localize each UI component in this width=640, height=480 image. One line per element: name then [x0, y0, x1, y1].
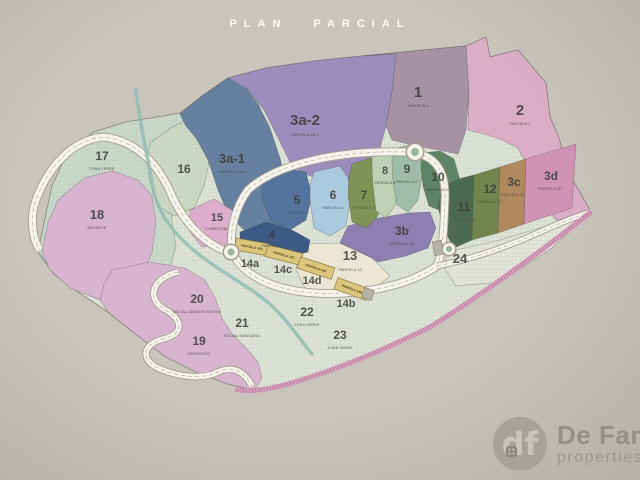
roundabout-island — [228, 249, 234, 255]
parcel-caption-2: PARCELA 2 — [509, 122, 530, 126]
parcel-caption-5: PARCELA 5 — [286, 211, 307, 215]
logo-tagline: properties — [557, 450, 640, 466]
parcel-label-10: 10 — [431, 170, 445, 184]
parcel-caption-3d: PARCELA 3D — [538, 187, 562, 191]
parcel-label-4: 4 — [269, 229, 276, 241]
parcel-label-3a-2: 3a-2 — [290, 112, 320, 129]
parcel-label-19: 19 — [192, 334, 206, 348]
parcel-label-14a: 14a — [241, 258, 260, 270]
parcel-caption-12: PARCELA 12 — [478, 200, 501, 204]
parcel-caption-8: PARCELA 8 — [374, 181, 395, 185]
plan-map-svg: PARCELA 14APARCELA 14CPARCELA 14DPARCELA… — [0, 0, 640, 480]
parcel-caption-3b: PARCELA 3B — [390, 242, 414, 246]
parcel-label-13: 13 — [343, 248, 357, 263]
parcel-label-17: 17 — [95, 149, 109, 163]
parcel-label-3a-1: 3a-1 — [219, 151, 245, 166]
roundabout-island — [411, 148, 418, 155]
logo-monogram-text: df — [502, 425, 540, 463]
parcel-caption-6: PARCELA 6 — [322, 206, 343, 210]
parcel-caption-22: ZONA VERDE — [294, 323, 320, 327]
parcel-label-11: 11 — [458, 200, 471, 214]
parcel-caption-10: PARCELA 10 — [426, 188, 449, 192]
parcel-label-20: 20 — [190, 292, 204, 306]
parcel-caption-18: DOCENTE — [88, 226, 107, 230]
parcel-label-21: 21 — [235, 316, 249, 330]
parcel-label-15: 15 — [211, 212, 223, 224]
parcel-caption-3a-1: PARCELA 3A-1 — [218, 170, 245, 174]
parcel-caption-7: PARCELA 7 — [353, 206, 374, 210]
parcel-label-14c: 14c — [274, 264, 292, 276]
parcel-caption-19: DEPORTIVO — [188, 352, 211, 356]
parcel-label-3d: 3d — [544, 169, 558, 183]
parcel-label-14b: 14b — [337, 298, 356, 310]
parcel-label-16: 16 — [177, 162, 191, 176]
parcel-caption-4: PARCELA 4 — [261, 244, 282, 248]
parcel-label-6: 6 — [330, 188, 337, 202]
parcel-label-24: 24 — [453, 251, 468, 266]
parcel-label-22: 22 — [300, 305, 314, 319]
parcel-label-14d: 14d — [303, 275, 322, 287]
parcel-label-12: 12 — [483, 182, 497, 196]
parcel-caption-20: SOCIAL ADMINISTRATIVO — [173, 310, 221, 314]
parcel-label-9: 9 — [404, 162, 411, 176]
parcel-caption-3a-2: PARCELA 3A-2 — [291, 133, 318, 137]
logo-name: De Fari — [557, 422, 640, 448]
parcel-caption-1: PARCELA 1 — [407, 104, 428, 108]
parcel-caption-17: ZONA VERDE — [89, 167, 115, 171]
parcel-label-3c: 3c — [507, 175, 521, 189]
parcel-label-7: 7 — [361, 188, 368, 202]
parcel-label-8: 8 — [382, 165, 388, 177]
parcel-label-23: 23 — [333, 328, 347, 342]
parcel-caption-11: PARCELA 11 — [452, 218, 475, 222]
parcel-caption-21: SOCIAL SANITARIO — [224, 334, 260, 338]
parcel-label-3b: 3b — [395, 224, 409, 238]
logo-monogram-icon: df — [492, 416, 548, 472]
map-shapes: PARCELA 14APARCELA 14CPARCELA 14DPARCELA… — [32, 37, 591, 391]
parcel-caption-13: PARCELA 13 — [338, 268, 361, 272]
parcel-label-2: 2 — [516, 102, 524, 119]
parcel-caption-9: PARCELA 9 — [396, 180, 417, 184]
parcel-label-5: 5 — [294, 193, 301, 207]
parcel-caption-3c: PARCELA 3C — [501, 193, 525, 197]
roundabout-island — [446, 246, 451, 251]
parcel-label-1: 1 — [414, 84, 422, 101]
parcel-caption-23: ZONA VERDE — [327, 346, 353, 350]
parcel-caption-15: COMERCIAL — [205, 227, 228, 231]
company-logo: df De Fari properties — [492, 416, 640, 472]
parcel-label-18: 18 — [90, 207, 104, 222]
